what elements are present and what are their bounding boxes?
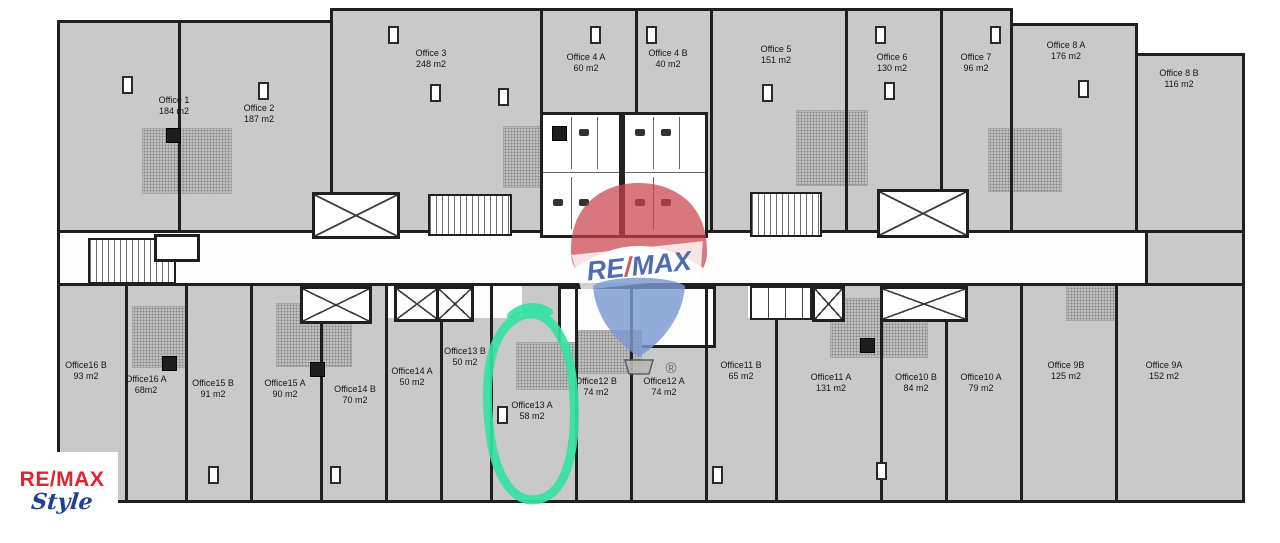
wall [1010,23,1137,26]
column [590,26,601,44]
office-area: 60 m2 [573,63,598,73]
office-area: 184 m2 [159,106,189,116]
column [122,76,133,94]
elevator-shaft [312,192,400,239]
wall-corridor-end [1145,230,1148,286]
office-name: Office 4 B [648,48,687,58]
office-area: 130 m2 [877,63,907,73]
office-area: 68m2 [135,385,158,395]
office-name: Office 7 [961,52,992,62]
column [1078,80,1089,98]
elevator-shaft [394,286,440,322]
column [498,88,509,106]
wall [57,20,60,503]
office-label-2: Office 2187 m2 [213,103,305,125]
wall [57,20,333,23]
office-name: Office 1 [159,95,190,105]
wet-area-patch [1066,283,1118,321]
office-area: 74 m2 [651,387,676,397]
office-name: Office 5 [761,44,792,54]
office-label-1: Office 1184 m2 [128,95,220,117]
wall [845,10,848,230]
office-name: Office15 B [192,378,234,388]
wall [57,500,1245,503]
office-area: 50 m2 [399,377,424,387]
office-area: 125 m2 [1051,371,1081,381]
column [884,82,895,100]
column [646,26,657,44]
office-area: 84 m2 [903,383,928,393]
elevator-shaft [300,286,372,324]
office-name: Office 8 A [1047,40,1086,50]
column [388,26,399,44]
column [762,84,773,102]
office-name: Office13 B [444,346,486,356]
office-area: 93 m2 [73,371,98,381]
office-area: 58 m2 [519,411,544,421]
wall [1242,53,1245,503]
office-label-9b: Office 9B125 m2 [1020,360,1112,382]
office-area: 91 m2 [200,389,225,399]
office-label-11a: Office11 A131 m2 [785,372,877,394]
office-name: Office15 A [264,378,305,388]
office-label-13b: Office13 B50 m2 [419,346,511,368]
office-area: 248 m2 [416,59,446,69]
office-label-4a: Office 4 A60 m2 [540,52,632,74]
block-top-left [57,22,330,230]
wall [490,286,493,500]
wall [1135,25,1138,230]
office-area: 152 m2 [1149,371,1179,381]
staircase [428,194,512,236]
service-box [166,128,181,143]
office-area: 131 m2 [816,383,846,393]
column [208,466,219,484]
office-name: Office13 A [511,400,552,410]
elevator-shaft [436,286,474,322]
column [990,26,1001,44]
wall [330,8,1012,11]
service-box [860,338,875,353]
office-area: 90 m2 [272,389,297,399]
elevator-shaft [877,189,969,238]
wet-area-patch [796,110,868,186]
office-name: Office 4 A [567,52,606,62]
column [258,82,269,100]
elevator-shaft [812,286,845,322]
office-label-9a: Office 9A152 m2 [1118,360,1210,382]
office-area: 40 m2 [655,59,680,69]
wet-area-patch [142,128,232,194]
office-label-5: Office 5151 m2 [730,44,822,66]
office-area: 96 m2 [963,63,988,73]
service-box [552,126,567,141]
service-box [162,356,177,371]
office-name: Office10 B [895,372,937,382]
office-name: Office 9B [1048,360,1085,370]
office-label-3: Office 3248 m2 [385,48,477,70]
office-area: 79 m2 [968,383,993,393]
remax-balloon-watermark: RE/MAX ® [563,178,715,381]
column [330,466,341,484]
office-area: 187 m2 [244,114,274,124]
registered-mark: ® [665,360,676,376]
elevator-shaft [880,286,968,322]
elevator-shaft [154,234,200,262]
wall [178,22,181,230]
column [430,84,441,102]
toilet-stalls [750,286,812,320]
office-label-8b: Office 8 B116 m2 [1133,68,1225,90]
wall [1115,286,1118,500]
office-label-4b: Office 4 B40 m2 [622,48,714,70]
office-name: Office 8 B [1159,68,1198,78]
office-label-10a: Office10 A79 m2 [935,372,1027,394]
wet-area-patch [988,128,1062,192]
agency-logo: RE/MAX Style [10,468,114,515]
wall [1010,10,1013,230]
office-label-7: Office 796 m2 [930,52,1022,74]
office-label-14a: Office14 A50 m2 [366,366,458,388]
office-label-8a: Office 8 A176 m2 [1020,40,1112,62]
office-name: Office16 B [65,360,107,370]
office-area: 70 m2 [342,395,367,405]
office-name: Office10 A [960,372,1001,382]
office-area: 65 m2 [728,371,753,381]
office-name: Office11 B [720,360,761,370]
office-label-6: Office 6130 m2 [846,52,938,74]
office-area: 116 m2 [1164,79,1193,89]
office-name: Office16 A [125,374,166,384]
office-area: 151 m2 [761,55,791,65]
floor-plan: Office 1184 m2 Office 2187 m2 Office 324… [0,0,1280,543]
office-name: Office 2 [244,103,275,113]
balloon-icon: RE/MAX ® [563,178,715,376]
column [875,26,886,44]
wall [1135,53,1245,56]
agency-logo-style: Style [9,489,116,515]
block-corridor-right [1145,230,1245,286]
office-name: Office11 A [811,372,852,382]
office-area: 74 m2 [583,387,608,397]
office-name: Office 3 [416,48,447,58]
office-area: 176 m2 [1051,51,1081,61]
office-area: 50 m2 [452,357,477,367]
wet-area-patch [132,306,186,368]
service-box [310,362,325,377]
office-name: Office 6 [877,52,908,62]
office-name: Office 9A [1146,360,1183,370]
staircase [750,192,822,237]
column [712,466,723,484]
column [876,462,887,480]
office-label-13a-highlighted: Office13 A58 m2 [486,400,578,422]
